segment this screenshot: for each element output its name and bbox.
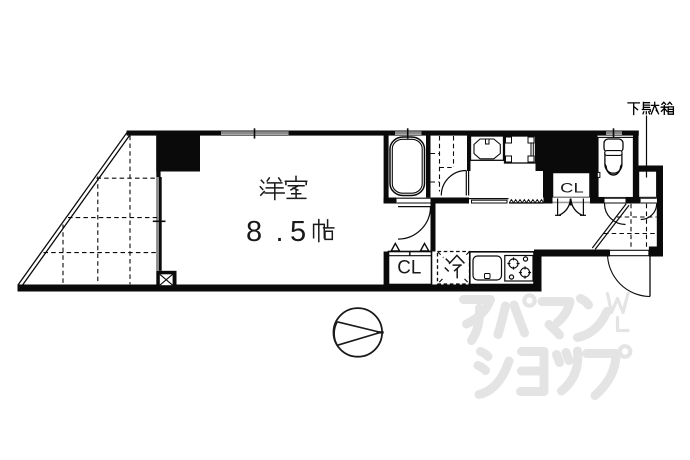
svg-text:8: 8 bbox=[246, 216, 262, 248]
svg-text:CL: CL bbox=[397, 257, 421, 278]
svg-text:.: . bbox=[276, 216, 284, 248]
svg-text:CL: CL bbox=[560, 180, 584, 195]
svg-text:5: 5 bbox=[290, 216, 306, 248]
